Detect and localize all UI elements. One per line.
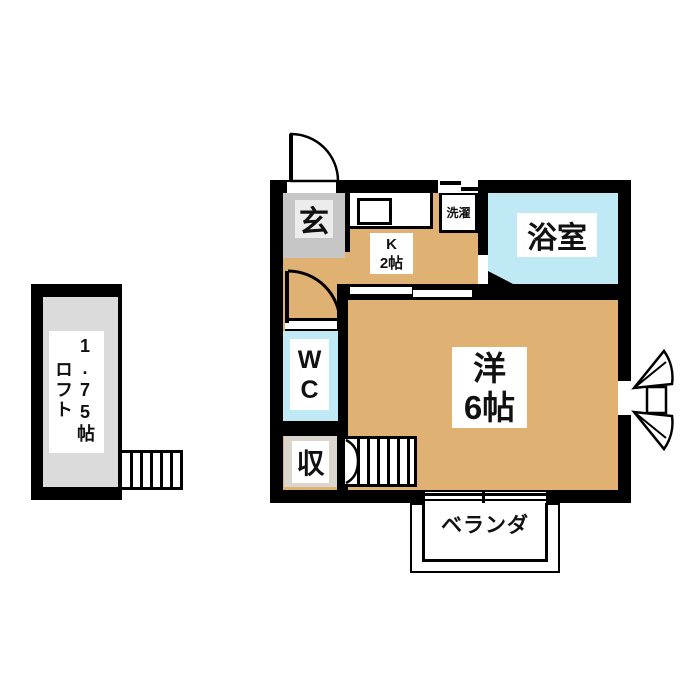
wc-door-sill [285,318,337,331]
casement-upper-line [634,362,666,388]
kitchen-sink [357,198,392,225]
main-stairs [342,436,417,487]
storage-label: 収 [292,441,329,483]
kitchen-window-bar-1 [440,181,461,185]
casement-center-frame [647,387,666,413]
western-room-name: 洋 [473,350,506,387]
kitchen-label: K 2帖 [370,233,413,274]
right-window-tick-top [618,377,631,381]
loft-wall-bottom [31,487,122,500]
kitchen-size: 2帖 [380,255,403,272]
western-room-size: 6帖 [464,389,515,426]
right-window-tick-bottom [618,415,631,419]
laundry-box: 洗濯 [439,192,478,233]
wall-below-wc [283,421,337,436]
right-window-gap [618,377,631,419]
kitchen-name: K [386,236,397,253]
loft-wall-top [31,284,122,297]
floorplan-canvas: 1.75帖 ロフト 玄 K 2帖 洗濯 W C 収 [0,0,700,700]
veranda-label: ベランダ [425,510,545,538]
casement-upper-leaf [634,351,672,388]
casement-lower-line [634,412,666,438]
wall-kitchen-bath [478,193,488,255]
sliding-door-panel-2 [413,290,472,297]
balcony-window-tick [482,491,485,503]
sliding-door-panel-1 [350,287,412,294]
loft-stairs [119,450,183,490]
wc-line1: W [298,346,322,374]
balcony-window-line-1 [425,493,546,496]
wc-label: W C [290,339,329,410]
entrance-door-sill [287,182,336,193]
loft-name-label: ロフト [52,360,74,440]
western-room-label: 洋 6帖 [452,347,527,428]
entrance-door-arc [291,134,338,181]
kitchen-window-bar-2 [461,187,478,191]
casement-lower-leaf [634,412,672,449]
balcony-window-line-2 [425,499,546,502]
genkan-label: 玄 [295,200,333,238]
loft-wall-left [31,284,43,500]
wc-line2: C [300,376,318,404]
loft-size-label: 1.75帖 [74,336,96,451]
bathroom-label: 浴室 [517,213,597,257]
